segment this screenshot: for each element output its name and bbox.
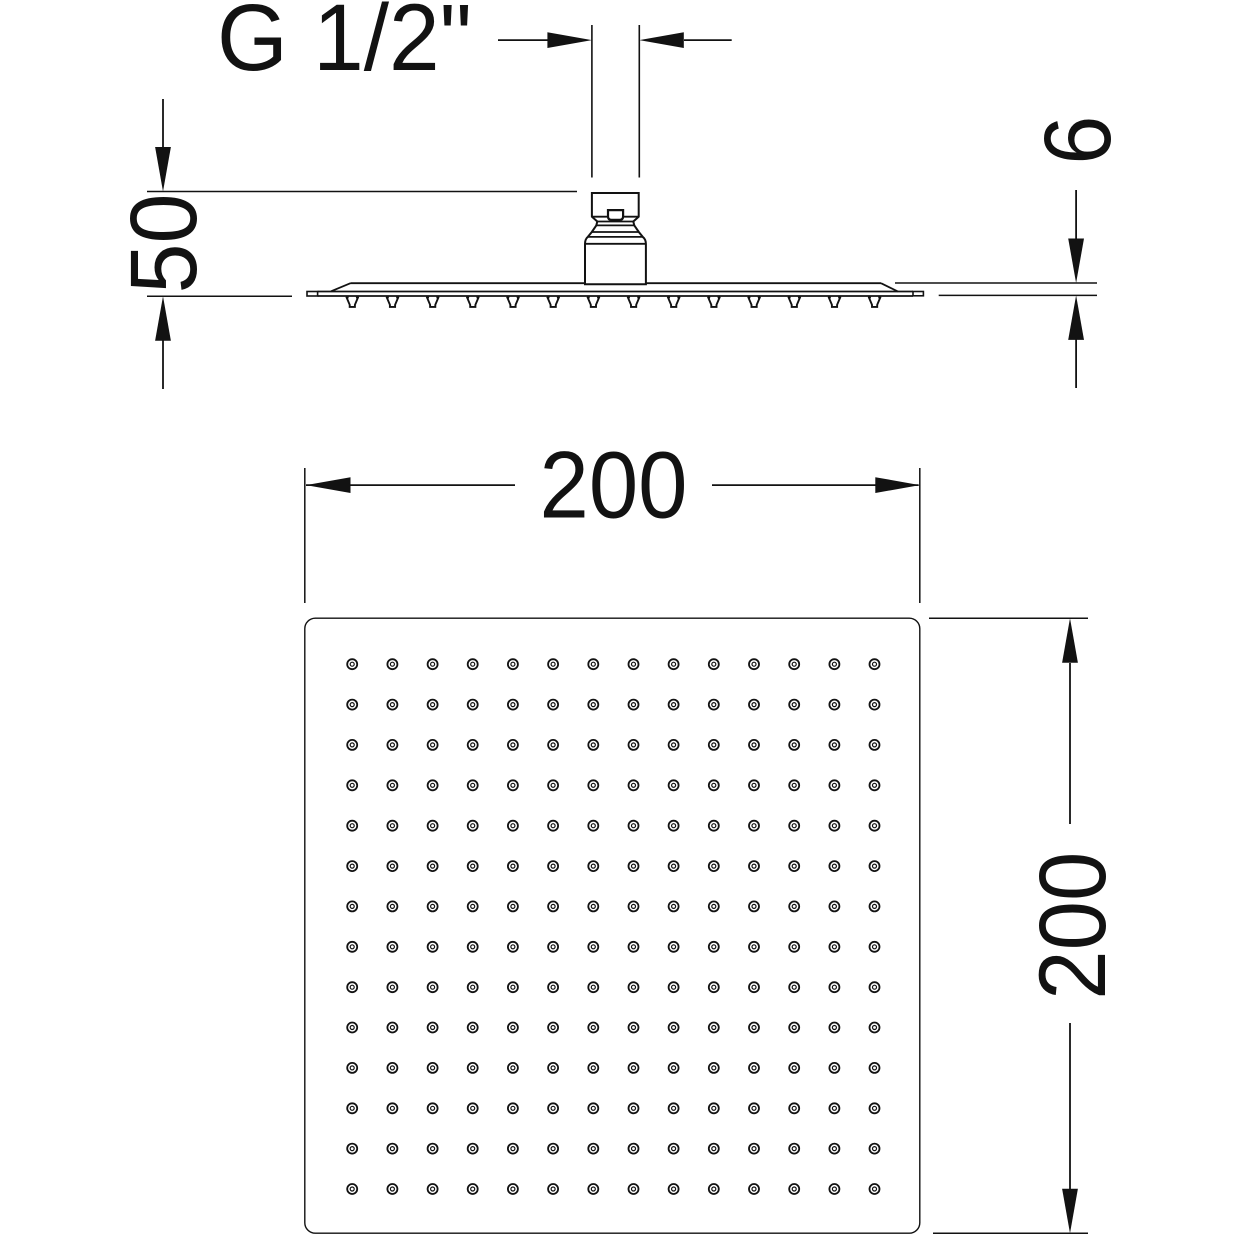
svg-text:50: 50 bbox=[111, 194, 217, 294]
svg-text:6: 6 bbox=[1025, 116, 1131, 165]
svg-text:200: 200 bbox=[1020, 852, 1126, 1000]
svg-text:200: 200 bbox=[540, 432, 688, 538]
svg-text:G 1/2": G 1/2" bbox=[217, 0, 472, 91]
